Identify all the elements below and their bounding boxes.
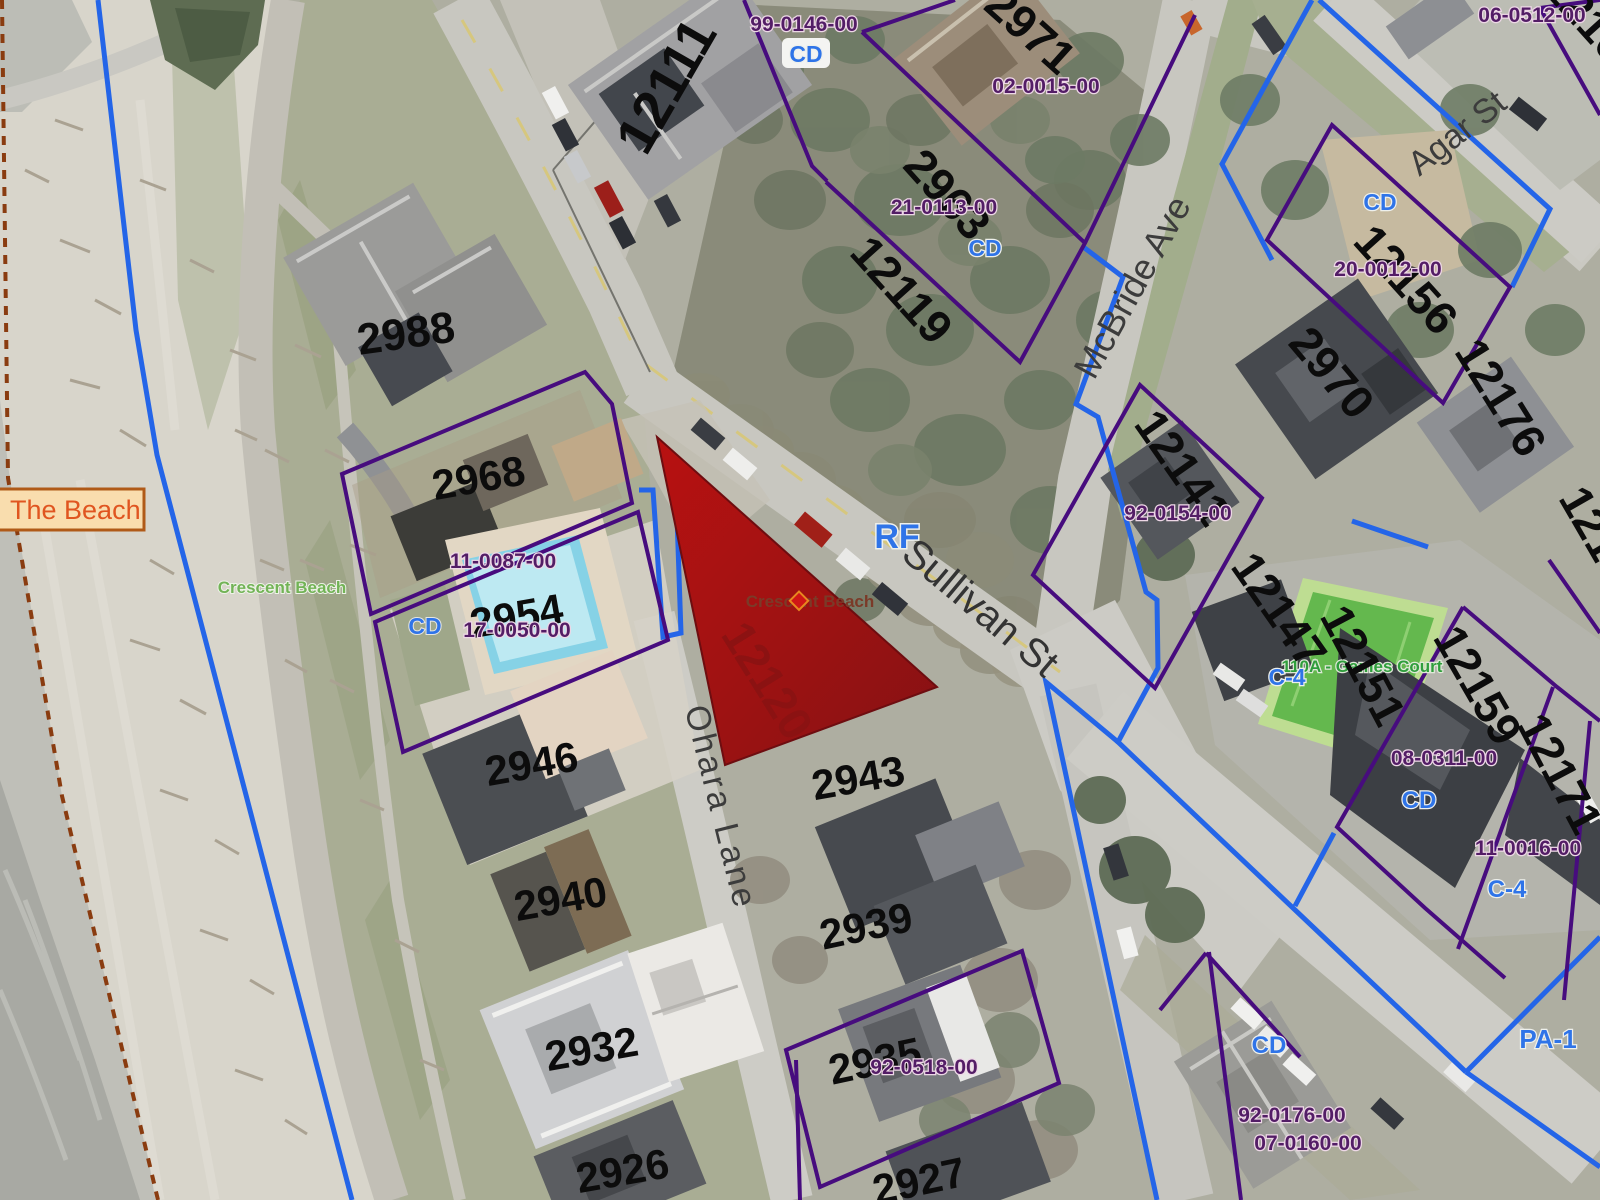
svg-text:20-0012-00: 20-0012-00 [1334, 258, 1441, 281]
svg-text:CD: CD [789, 41, 822, 67]
svg-text:92-0518-00: 92-0518-00 [870, 1056, 977, 1079]
svg-text:The Beach: The Beach [10, 495, 141, 525]
svg-text:17-0050-00: 17-0050-00 [463, 619, 570, 642]
svg-text:CD: CD [1363, 189, 1396, 215]
svg-text:08-0311-00: 08-0311-00 [1391, 747, 1497, 770]
svg-text:99-0146-00: 99-0146-00 [750, 13, 857, 36]
svg-text:92-0154-00: 92-0154-00 [1124, 502, 1231, 525]
svg-text:CD: CD [968, 235, 1001, 261]
svg-text:C-4: C-4 [1488, 876, 1527, 903]
svg-text:11-0016-00: 11-0016-00 [1475, 837, 1581, 860]
svg-text:Crescent Beach: Crescent Beach [746, 592, 875, 611]
svg-text:21-0113-00: 21-0113-00 [891, 196, 997, 219]
svg-text:11-0087-00: 11-0087-00 [450, 550, 556, 573]
svg-text:Crescent Beach: Crescent Beach [218, 578, 347, 597]
svg-text:PA-1: PA-1 [1519, 1024, 1576, 1054]
svg-text:02-0015-00: 02-0015-00 [992, 75, 1099, 98]
svg-text:CD: CD [1252, 1032, 1287, 1059]
svg-text:CD: CD [1402, 787, 1437, 814]
svg-text:CD: CD [408, 613, 441, 639]
svg-text:92-0176-00: 92-0176-00 [1238, 1104, 1345, 1127]
svg-text:C-4: C-4 [1268, 664, 1305, 690]
svg-text:RF: RF [874, 518, 919, 556]
svg-text:06-0512-00: 06-0512-00 [1478, 4, 1585, 27]
svg-text:07-0160-00: 07-0160-00 [1254, 1132, 1361, 1155]
